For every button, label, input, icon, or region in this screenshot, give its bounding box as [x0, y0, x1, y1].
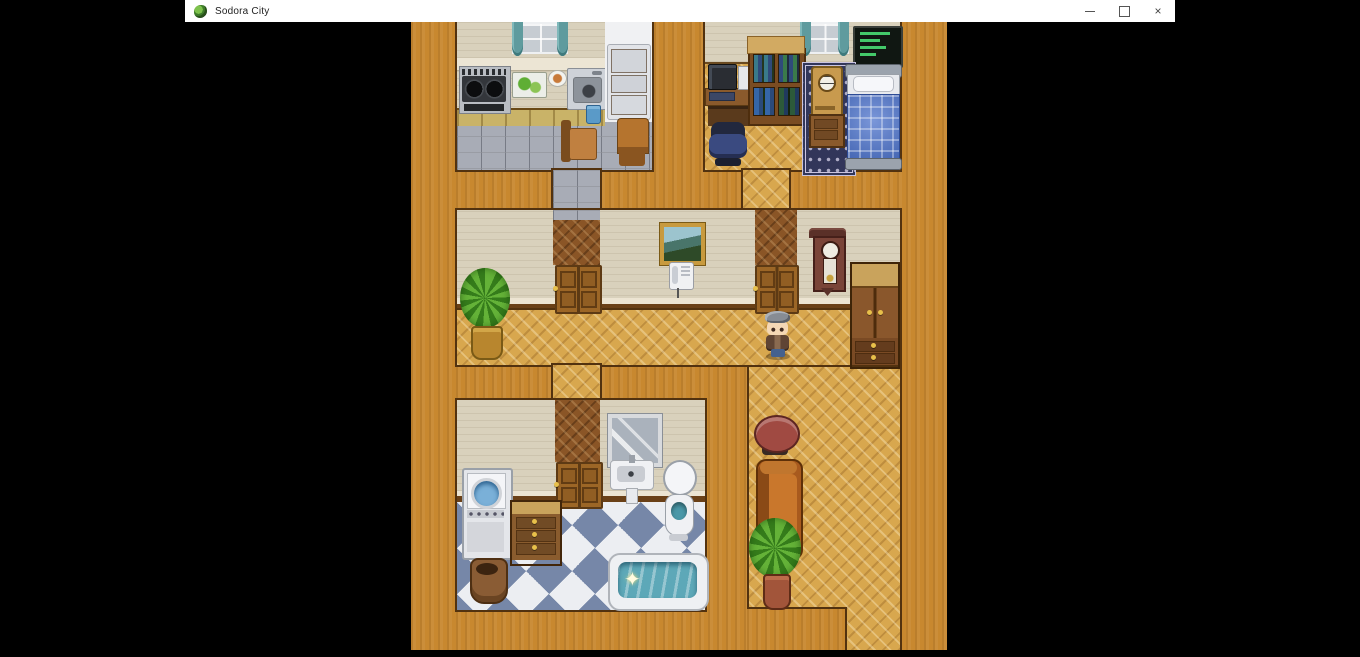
faucet — [592, 71, 602, 75]
bed — [845, 64, 900, 168]
curtain-right — [838, 22, 849, 56]
game-viewport[interactable]: ✦ — [185, 22, 1175, 650]
chair-seat — [709, 134, 747, 158]
keyboard — [709, 92, 735, 101]
pillow — [853, 76, 894, 92]
curtain-right — [557, 22, 568, 56]
character-hair — [765, 311, 790, 323]
round-table — [754, 415, 796, 457]
kitchen-corridor-tiles — [553, 170, 600, 214]
doorway-left — [553, 210, 600, 312]
clock-face — [818, 74, 836, 92]
chair-back — [617, 118, 649, 154]
plant-leaves — [460, 268, 510, 328]
dresser-body — [512, 514, 560, 560]
plant-pot — [763, 574, 791, 610]
stove — [459, 66, 511, 114]
sink-basin — [617, 466, 645, 482]
washing-machine — [462, 468, 513, 560]
curtain-left — [512, 22, 523, 56]
dragon-game-icon — [194, 5, 207, 18]
toilet-water — [671, 502, 687, 520]
stove-burners — [462, 76, 506, 102]
wall-step — [747, 607, 847, 650]
phone-handset — [672, 266, 678, 284]
dresser-top — [512, 502, 560, 514]
sink-top — [610, 460, 654, 490]
wardrobe-drawers — [852, 338, 898, 365]
wardrobe-doors — [852, 288, 898, 338]
refrigerator — [607, 44, 651, 120]
refrigerator-nook — [605, 22, 652, 122]
bathroom-dresser — [510, 500, 562, 566]
chair-base — [715, 158, 741, 166]
close-button[interactable]: × — [1141, 0, 1175, 22]
bookshelf — [748, 48, 806, 126]
couch-armrest — [760, 461, 797, 474]
wardrobe-top — [852, 264, 898, 288]
chair-seat — [619, 152, 645, 166]
minimize-button[interactable] — [1073, 0, 1107, 22]
bathroom-sink — [610, 460, 652, 502]
window-title: Sodora City — [215, 6, 269, 17]
bedroom-window — [800, 22, 849, 54]
toilet-base — [669, 534, 688, 541]
doorway-floor — [555, 400, 600, 462]
doorway-tiles — [553, 210, 600, 220]
plant-leaves — [749, 518, 801, 578]
bathtub: ✦ — [608, 553, 709, 611]
bedroom-corridor-floor — [743, 170, 789, 210]
house-map: ✦ — [411, 22, 947, 650]
nightstand — [809, 114, 845, 148]
maximize-icon — [1119, 6, 1130, 17]
food-plate — [548, 70, 567, 87]
character-pants — [771, 349, 785, 357]
terminal-text-line — [860, 32, 890, 35]
books — [778, 54, 800, 83]
washer-lid — [467, 473, 506, 509]
kitchen-room — [457, 22, 652, 170]
kitchen-chair-2 — [613, 118, 651, 168]
wardrobe — [850, 262, 900, 369]
toilet — [662, 460, 695, 546]
minimize-icon — [1085, 11, 1095, 12]
framed-picture — [660, 223, 705, 265]
table-top — [754, 415, 800, 453]
door-knob — [554, 482, 559, 487]
terminal-text-line — [860, 39, 880, 42]
books — [753, 54, 775, 83]
terminal-screen — [853, 26, 903, 68]
mantel-clock — [811, 66, 843, 116]
terminal-text-line — [860, 46, 886, 49]
bathroom-corridor-floor — [553, 365, 600, 400]
books — [753, 87, 775, 116]
middle-rooms-wall — [457, 210, 900, 310]
clock-base — [815, 106, 835, 110]
bathroom-room: ✦ — [457, 400, 705, 610]
player-character[interactable] — [762, 311, 793, 361]
pendulum-window — [823, 258, 837, 284]
sink-basin — [573, 77, 602, 103]
clock-bracket — [821, 288, 834, 296]
sparkle-effect: ✦ — [624, 567, 641, 592]
game-window: Sodora City × — [185, 0, 1175, 650]
maximize-button[interactable] — [1107, 0, 1141, 22]
door-knob — [753, 286, 758, 291]
terminal-text-line — [860, 53, 876, 56]
kitchen-window — [512, 22, 568, 54]
books — [778, 87, 800, 116]
doorway-right — [755, 210, 797, 312]
bedroom — [705, 22, 900, 170]
computer-desk — [705, 62, 752, 128]
doorway-floor — [755, 210, 797, 265]
hallway-floor — [457, 310, 900, 365]
faucet — [629, 455, 635, 463]
telephone — [667, 262, 694, 298]
bed-footboard — [845, 158, 902, 170]
kitchen-chair — [561, 120, 595, 168]
title-bar[interactable]: Sodora City × — [185, 0, 1175, 22]
door-knob — [553, 286, 558, 291]
doorway-floor — [553, 220, 600, 265]
office-chair — [707, 122, 749, 168]
bookshelf-top — [747, 36, 805, 54]
clock-body — [813, 236, 846, 292]
cutting-board — [512, 72, 547, 98]
phone-cord — [677, 288, 679, 298]
stove-drawer — [464, 104, 504, 111]
stove-vent — [462, 69, 506, 75]
sink-pedestal — [626, 488, 638, 504]
character-face — [767, 321, 788, 335]
monitor — [708, 64, 737, 90]
clay-pot — [470, 558, 508, 604]
plant-pot — [471, 326, 503, 360]
washer-front — [467, 522, 504, 552]
bed-quilt — [847, 94, 900, 160]
potted-plant — [460, 268, 510, 360]
kitchen-sink — [567, 68, 607, 110]
toilet-bowl — [665, 494, 694, 536]
grandfather-clock — [809, 228, 846, 298]
bathroom-door[interactable] — [556, 462, 603, 509]
pot-opening — [476, 563, 498, 575]
toilet-lid — [663, 460, 697, 496]
door[interactable] — [755, 265, 799, 314]
chair-seat — [569, 128, 597, 160]
washer-window — [471, 478, 502, 509]
phone-body — [669, 262, 694, 290]
potted-plant-2 — [749, 518, 801, 608]
phone-keypad — [681, 266, 690, 278]
washer-controls — [467, 510, 504, 518]
door[interactable] — [555, 265, 602, 314]
